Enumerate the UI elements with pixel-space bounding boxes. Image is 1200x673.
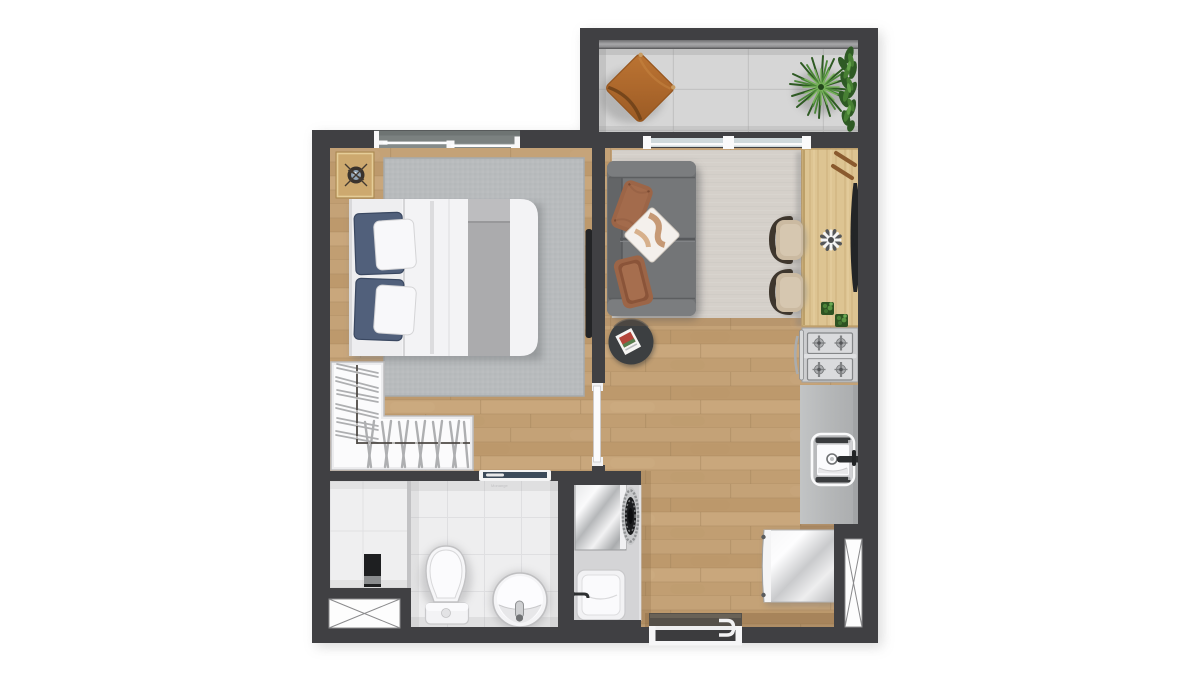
svg-text:Monange: Monange [491,483,508,488]
